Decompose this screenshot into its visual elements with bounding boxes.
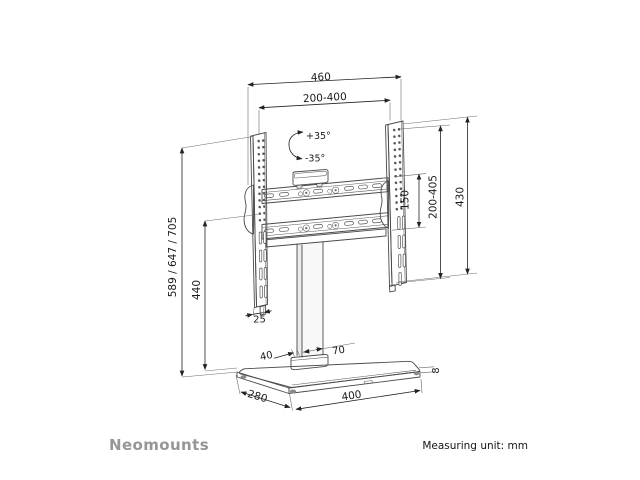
column-base-flange bbox=[291, 354, 328, 369]
base-plate bbox=[237, 361, 420, 393]
dim-rail-spacing-label: 150 bbox=[400, 190, 412, 210]
tilt-arc bbox=[289, 132, 303, 159]
dim-outer-width-label: 460 bbox=[311, 71, 332, 84]
dim-column-width-label: 70 bbox=[332, 345, 346, 358]
technical-drawing-page: 460 200-400 +35° -35° 430 200-405 150 58… bbox=[0, 0, 640, 480]
dim-base-thickness-label: 8 bbox=[431, 367, 442, 373]
dim-bracket-height-label: 430 bbox=[455, 187, 467, 207]
brand-wordmark: Neomounts bbox=[109, 436, 209, 454]
dim-base-depth-label: 280 bbox=[246, 388, 269, 405]
measuring-unit-note: Measuring unit: mm bbox=[422, 440, 528, 452]
cap-cover bbox=[293, 170, 328, 189]
base-foot bbox=[290, 390, 296, 394]
base-foot bbox=[414, 372, 420, 375]
mounting-rail-lower bbox=[262, 213, 388, 239]
base-foot bbox=[241, 375, 247, 379]
tilt-down-label: -35° bbox=[305, 154, 325, 165]
stand-column bbox=[297, 242, 323, 357]
mounting-rail-upper bbox=[262, 178, 388, 204]
dim-column-depth-label: 40 bbox=[259, 350, 274, 363]
dim-column-height-label: 440 bbox=[191, 280, 203, 300]
dim-height-options-label: 589 / 647 / 705 bbox=[167, 217, 179, 298]
extension-lines bbox=[182, 79, 477, 411]
dim-vesa-height-label: 200-405 bbox=[428, 175, 440, 219]
tv-stand-technical-drawing: 460 200-400 +35° -35° 430 200-405 150 58… bbox=[0, 0, 640, 480]
dim-vesa-width-label: 200-400 bbox=[303, 91, 347, 105]
dim-base-width-label: 400 bbox=[341, 389, 363, 404]
tilt-up-label: +35° bbox=[306, 131, 331, 142]
dim-bracket-thickness-label: 25 bbox=[253, 315, 266, 326]
dimension-lines bbox=[182, 77, 468, 410]
